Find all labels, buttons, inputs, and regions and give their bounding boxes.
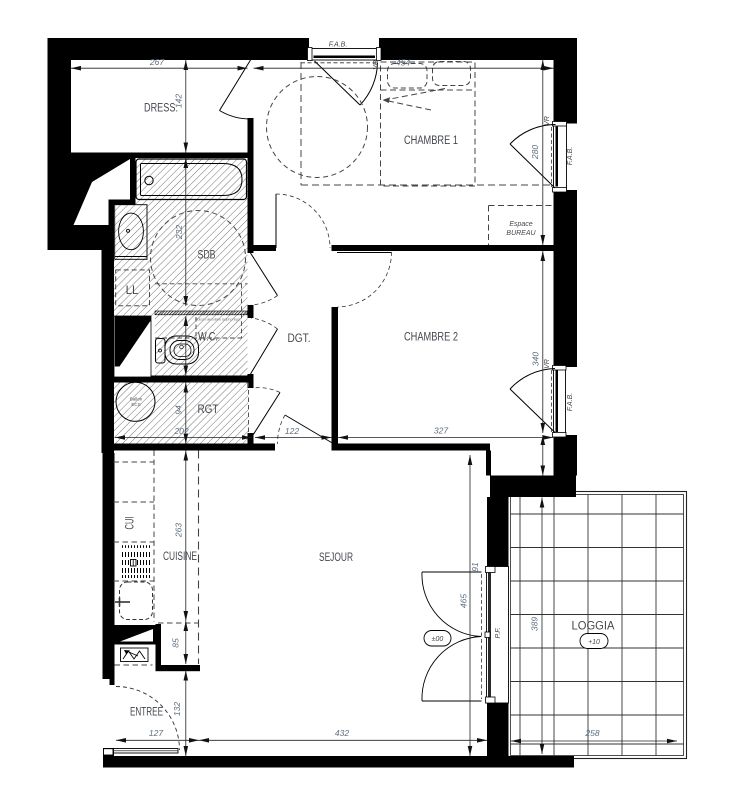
svg-text:W.C.: W.C. bbox=[198, 332, 218, 344]
svg-text:94: 94 bbox=[174, 405, 184, 415]
svg-text:RGT: RGT bbox=[198, 404, 219, 416]
svg-text:ENTREE: ENTREE bbox=[130, 707, 163, 719]
svg-text:389: 389 bbox=[530, 617, 540, 631]
svg-text:LOGGIA: LOGGIA bbox=[572, 621, 615, 633]
svg-text:LL: LL bbox=[126, 285, 139, 297]
svg-text:340: 340 bbox=[531, 352, 541, 366]
svg-text:327: 327 bbox=[434, 425, 448, 435]
svg-text:BUREAU: BUREAU bbox=[506, 230, 536, 237]
svg-text:VR: VR bbox=[544, 359, 551, 369]
svg-text:F.A.B.: F.A.B. bbox=[329, 42, 348, 49]
svg-text:258: 258 bbox=[584, 728, 599, 738]
svg-text:122: 122 bbox=[285, 426, 299, 436]
svg-text:+10: +10 bbox=[588, 639, 600, 646]
svg-text:P.F.: P.F. bbox=[495, 627, 502, 638]
svg-text:267: 267 bbox=[149, 57, 164, 67]
svg-text:DRESS.: DRESS. bbox=[144, 103, 178, 115]
svg-text:Espace: Espace bbox=[509, 221, 532, 228]
svg-text:F.A.B.: F.A.B. bbox=[567, 393, 574, 412]
svg-text:232: 232 bbox=[174, 225, 184, 240]
svg-text:454: 454 bbox=[396, 57, 410, 67]
svg-text:SDB: SDB bbox=[198, 250, 216, 262]
svg-text:CHAMBRE 2: CHAMBRE 2 bbox=[404, 332, 458, 344]
svg-text:91: 91 bbox=[470, 562, 480, 572]
svg-text:Ballon: Ballon bbox=[130, 397, 143, 402]
svg-text:127: 127 bbox=[149, 728, 163, 738]
svg-text:280: 280 bbox=[530, 145, 540, 160]
svg-text:F.A.B.: F.A.B. bbox=[567, 147, 574, 166]
svg-text:cloison alveolaire isophonique: cloison alveolaire isophonique bbox=[195, 317, 242, 322]
svg-text:132: 132 bbox=[172, 702, 182, 716]
svg-text:CUISINE: CUISINE bbox=[163, 551, 197, 563]
svg-text:VR: VR bbox=[544, 116, 551, 126]
svg-text:465: 465 bbox=[459, 594, 469, 608]
svg-text:263: 263 bbox=[174, 523, 184, 538]
svg-text:±00: ±00 bbox=[432, 636, 444, 643]
svg-text:202: 202 bbox=[173, 426, 188, 436]
svg-text:ECS: ECS bbox=[131, 402, 140, 407]
svg-text:DGT.: DGT. bbox=[288, 333, 311, 345]
svg-text:CUI: CUI bbox=[125, 517, 137, 530]
svg-text:85: 85 bbox=[171, 638, 181, 648]
svg-text:SEJOUR: SEJOUR bbox=[319, 552, 353, 564]
svg-text:432: 432 bbox=[335, 728, 349, 738]
svg-text:VR: VR bbox=[373, 60, 380, 70]
svg-text:CHAMBRE 1: CHAMBRE 1 bbox=[404, 135, 458, 147]
